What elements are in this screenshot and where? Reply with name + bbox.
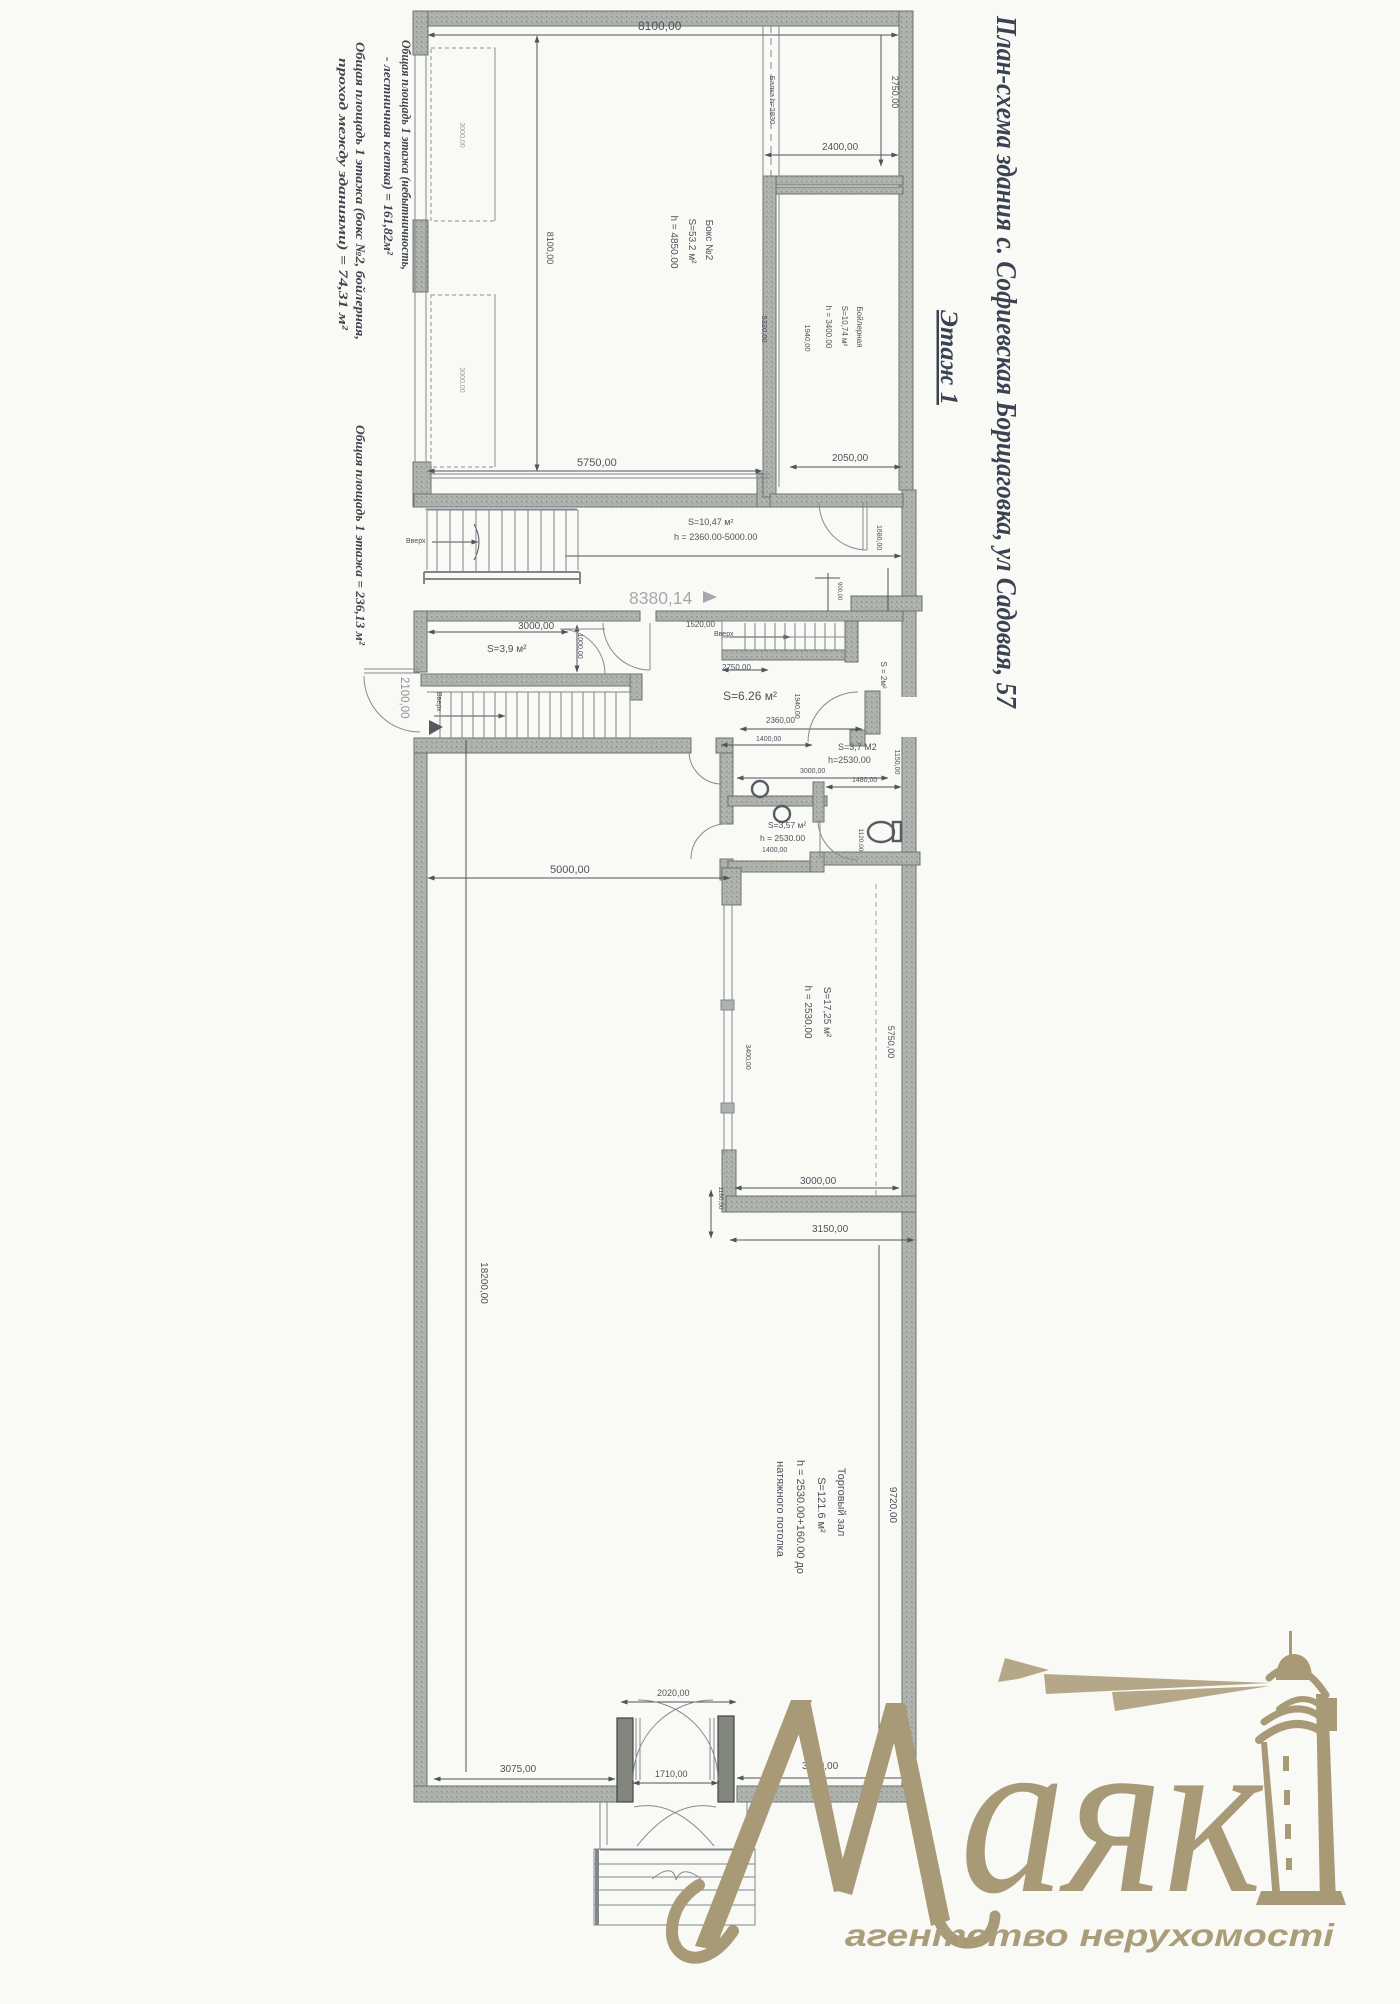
svg-text:аяк: аяк (960, 1686, 1264, 1941)
svg-text:S=53.2 м²: S=53.2 м² (686, 219, 697, 265)
svg-text:S=10,47 м²: S=10,47 м² (688, 517, 733, 527)
svg-text:2400,00: 2400,00 (822, 142, 859, 153)
svg-text:S=6.26 м²: S=6.26 м² (723, 689, 777, 703)
svg-text:h = 4850.00: h = 4850.00 (668, 215, 679, 269)
svg-text:1180,00: 1180,00 (717, 1186, 724, 1209)
svg-text:S = 2м²: S = 2м² (879, 661, 888, 688)
svg-text:S=3,57 м²: S=3,57 м² (768, 820, 806, 830)
svg-text:h=2530.00: h=2530.00 (828, 755, 871, 765)
svg-text:1150,00: 1150,00 (893, 750, 900, 775)
svg-text:h = 3400.00: h = 3400.00 (824, 306, 833, 349)
svg-text:3000,00: 3000,00 (800, 1176, 837, 1187)
svg-text:5750,00: 5750,00 (886, 1026, 896, 1059)
svg-text:h = 2530.00: h = 2530.00 (760, 833, 805, 843)
svg-text:3075,00: 3075,00 (500, 1764, 537, 1775)
svg-text:h = 2530.00+160.00 до: h = 2530.00+160.00 до (794, 1460, 806, 1574)
svg-text:1940,00: 1940,00 (803, 324, 812, 351)
svg-text:900,00: 900,00 (836, 582, 842, 601)
svg-text:Вверх: Вверх (406, 538, 426, 545)
svg-text:S=3,9 м²: S=3,9 м² (487, 644, 527, 655)
svg-text:5320,00: 5320,00 (760, 315, 769, 342)
svg-text:8100,00: 8100,00 (638, 19, 682, 33)
svg-text:h = 2360.00-5000.00: h = 2360.00-5000.00 (674, 532, 757, 542)
svg-text:Общая площадь 1 этажа (бокс №2: Общая площадь 1 этажа (бокс №2, бойлерна… (353, 42, 368, 340)
svg-text:Общая площадь 1 этажа (небытни: Общая площадь 1 этажа (небытничность, (399, 40, 414, 270)
svg-text:3000,00: 3000,00 (800, 768, 825, 775)
svg-text:агентство нерухомості: агентство нерухомості (845, 1917, 1336, 1953)
svg-text:5750,00: 5750,00 (577, 457, 617, 469)
svg-text:2360,00: 2360,00 (766, 716, 795, 725)
svg-text:9720,00: 9720,00 (887, 1487, 898, 1524)
svg-text:2050,00: 2050,00 (832, 453, 869, 464)
svg-text:1940,00: 1940,00 (793, 693, 800, 718)
svg-text:натяжного потолка: натяжного потолка (774, 1461, 786, 1558)
svg-text:Общая площадь 1 этажа = 236,13: Общая площадь 1 этажа = 236,13 м² (353, 425, 368, 646)
svg-text:1120,00: 1120,00 (857, 828, 864, 851)
svg-text:Балка h=2830: Балка h=2830 (768, 76, 777, 124)
svg-text:S=10,74 м²: S=10,74 м² (840, 306, 849, 347)
svg-text:1710,00: 1710,00 (655, 1769, 688, 1779)
svg-text:1400,00: 1400,00 (756, 736, 781, 743)
svg-text:18200,00: 18200,00 (478, 1262, 489, 1304)
svg-text:5000,00: 5000,00 (550, 864, 590, 876)
svg-text:3000,00: 3000,00 (458, 367, 465, 392)
svg-text:1400,00: 1400,00 (762, 847, 787, 854)
svg-text:2750,00: 2750,00 (722, 663, 751, 672)
svg-text:8380,14: 8380,14 (629, 588, 693, 608)
svg-text:S=17,25 м²: S=17,25 м² (821, 987, 832, 1038)
svg-text:2750,00: 2750,00 (890, 76, 900, 109)
svg-text:S=3,7 М2: S=3,7 М2 (838, 742, 877, 752)
svg-text:3000,00: 3000,00 (458, 122, 465, 147)
svg-text:Торговый зал: Торговый зал (835, 1468, 847, 1537)
svg-text:1000,00: 1000,00 (576, 633, 583, 658)
svg-text:Вверх: Вверх (714, 631, 734, 638)
svg-text:проход между зданиями) = 74,31: проход между зданиями) = 74,31 м² (336, 58, 351, 331)
svg-text:Бокс №2: Бокс №2 (703, 220, 714, 261)
svg-text:1480,00: 1480,00 (852, 777, 877, 784)
svg-text:2100,00: 2100,00 (398, 677, 410, 719)
svg-text:План-схема здания с. Софиевска: План-схема здания с. Софиевская Борщагов… (990, 15, 1022, 709)
svg-text:- лестничная клетка) = 161,82: - лестничная клетка) = 161,82м² (381, 57, 396, 256)
svg-text:2020,00: 2020,00 (657, 1688, 690, 1698)
svg-text:3400,00: 3400,00 (744, 1044, 751, 1069)
svg-text:3150,00: 3150,00 (812, 1224, 849, 1235)
svg-text:1680,00: 1680,00 (875, 525, 882, 550)
svg-text:Этаж 1: Этаж 1 (935, 310, 962, 405)
svg-text:Бойлерная: Бойлерная (855, 307, 864, 348)
svg-text:1520,00: 1520,00 (686, 620, 715, 629)
svg-text:h = 2530,00: h = 2530,00 (802, 985, 813, 1039)
svg-text:S=121.6 м²: S=121.6 м² (815, 1477, 827, 1533)
svg-text:3000,00: 3000,00 (518, 621, 555, 632)
svg-text:Вверх: Вверх (435, 692, 442, 712)
svg-text:8100,00: 8100,00 (545, 232, 555, 265)
